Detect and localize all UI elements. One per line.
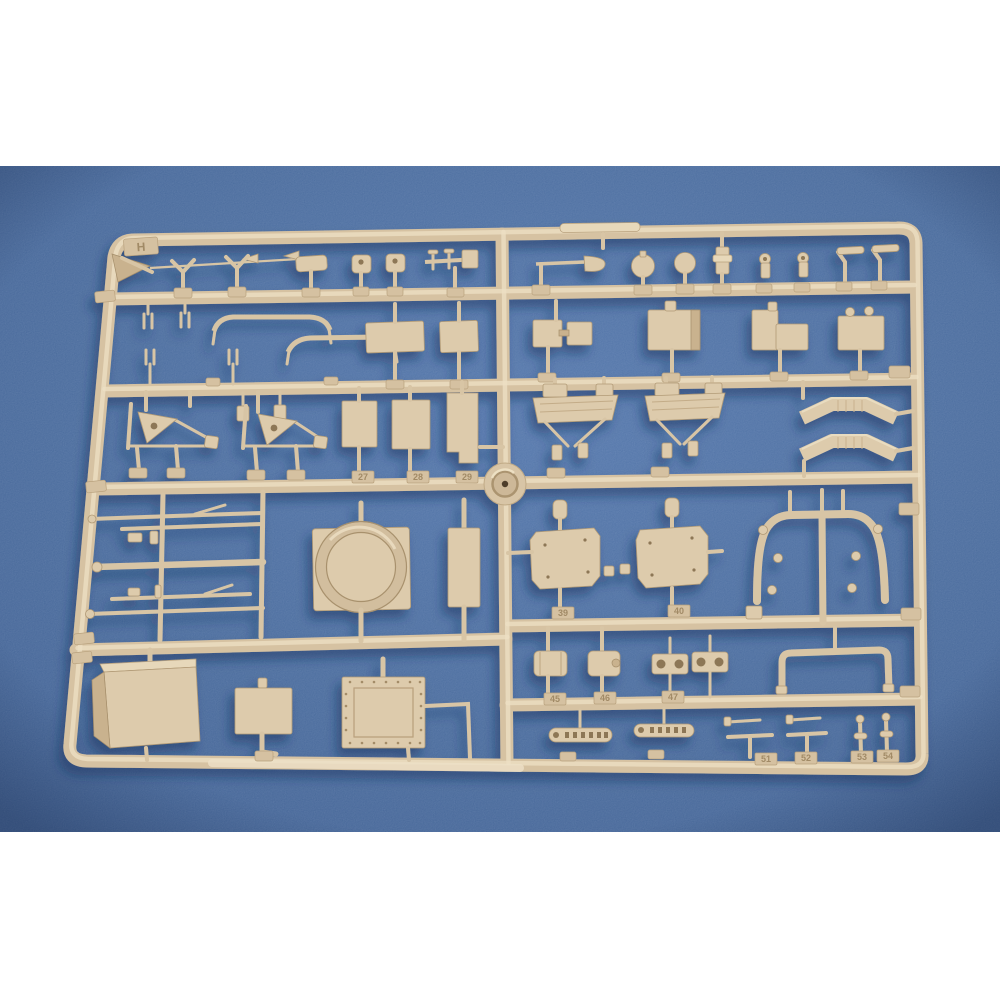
svg-text:39: 39 <box>558 608 568 618</box>
svg-text:52: 52 <box>801 753 811 763</box>
edge-tab <box>72 651 93 664</box>
part-tag: 39 <box>552 607 574 619</box>
svg-text:54: 54 <box>883 751 893 761</box>
svg-text:28: 28 <box>413 472 423 482</box>
sprue-letter: H <box>136 240 146 255</box>
svg-text:27: 27 <box>358 472 368 482</box>
edge-tab <box>900 686 920 697</box>
part-tag: 53 <box>851 751 873 763</box>
part-tag: 29 <box>456 471 478 483</box>
headlamp-ball-part <box>632 251 655 295</box>
glare-bottom-runner <box>212 763 520 768</box>
edge-tab <box>86 480 107 493</box>
edge-tab <box>95 290 116 303</box>
svg-text:29: 29 <box>462 472 472 482</box>
sprue-letter-tag: H <box>123 237 158 256</box>
injection-gate <box>484 463 526 505</box>
product-photo: H <box>0 0 1000 1000</box>
svg-text:45: 45 <box>550 694 560 704</box>
svg-text:46: 46 <box>600 693 610 703</box>
periscope-part <box>713 247 732 294</box>
edge-tab <box>889 366 910 378</box>
svg-text:40: 40 <box>674 606 684 616</box>
edge-tab <box>74 632 95 645</box>
part-tag: 46 <box>594 692 616 704</box>
svg-text:47: 47 <box>668 692 678 702</box>
edge-tab <box>901 608 921 620</box>
edge-tab <box>899 503 919 515</box>
part-tag: 54 <box>877 750 899 762</box>
part-tag: 51 <box>755 753 777 765</box>
part-tag: 28 <box>407 471 429 483</box>
photo-canvas: H <box>0 0 1000 1000</box>
svg-text:53: 53 <box>857 752 867 762</box>
part-tag: 52 <box>795 752 817 764</box>
part-tag: 47 <box>662 691 684 703</box>
part-tag: 27 <box>352 471 374 483</box>
glare-top-runner <box>560 222 640 232</box>
part-tag: 45 <box>544 693 566 705</box>
part-tag: 40 <box>668 605 690 617</box>
svg-text:51: 51 <box>761 754 771 764</box>
